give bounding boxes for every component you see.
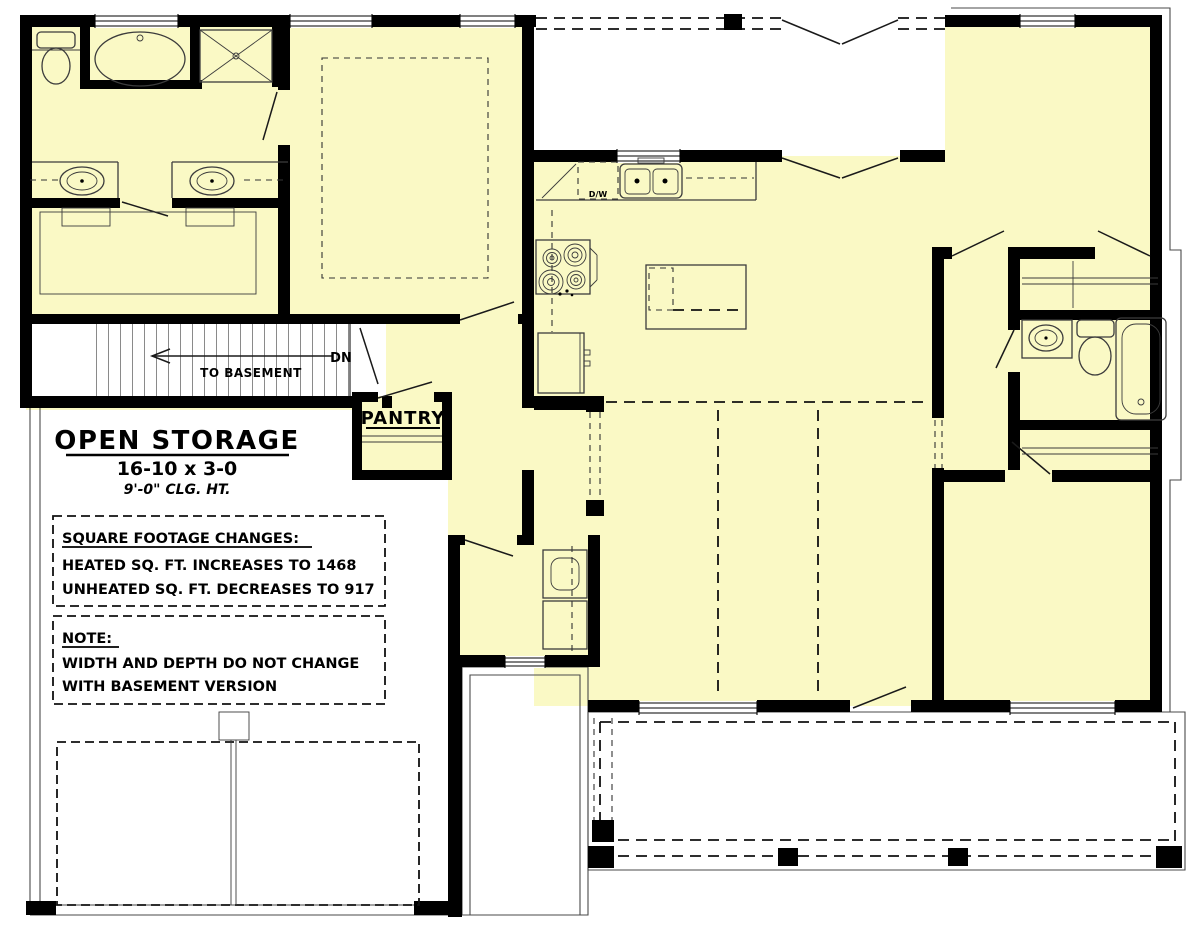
sqft-changes-box: SQUARE FOOTAGE CHANGES: HEATED SQ. FT. I… <box>53 516 385 606</box>
pantry-label: PANTRY <box>361 408 446 429</box>
stairs-destination-label: TO BASEMENT <box>200 366 302 380</box>
porch-post <box>588 846 614 868</box>
porch-post <box>778 848 798 866</box>
dishwasher-label: D/W <box>589 190 608 199</box>
porch-post <box>724 14 742 30</box>
sqft-title: SQUARE FOOTAGE CHANGES: <box>62 531 299 547</box>
window <box>617 149 680 163</box>
window <box>505 656 545 668</box>
open-storage: OPEN STORAGE 16-10 x 3-0 9'-0" CLG. HT. <box>54 426 300 498</box>
sqft-line2: UNHEATED SQ. FT. DECREASES TO 917 <box>62 582 375 598</box>
note-line1: WIDTH AND DEPTH DO NOT CHANGE <box>62 656 359 672</box>
window <box>1020 14 1075 28</box>
window <box>290 14 372 28</box>
window <box>1010 701 1115 715</box>
front-porch <box>588 718 1182 868</box>
window <box>639 701 757 715</box>
floor-plan-page: TO BASEMENT DN <box>0 0 1200 932</box>
garage-outline <box>57 712 419 905</box>
open-storage-dimensions: 16-10 x 3-0 <box>117 458 238 480</box>
note-box: NOTE: WIDTH AND DEPTH DO NOT CHANGE WITH… <box>53 616 385 704</box>
open-storage-title: OPEN STORAGE <box>54 426 300 456</box>
basement-stairs: TO BASEMENT DN <box>96 324 352 396</box>
open-storage-ceiling: 9'-0" CLG. HT. <box>124 482 231 498</box>
sqft-line1: HEATED SQ. FT. INCREASES TO 1468 <box>62 558 356 574</box>
rear-porch <box>536 14 945 44</box>
window <box>95 14 178 28</box>
note-title: NOTE: <box>62 631 112 647</box>
porch-post <box>592 820 614 842</box>
floor-plan-drawing: TO BASEMENT DN <box>0 0 1200 932</box>
porch-post <box>948 848 968 866</box>
stairs-dn-label: DN <box>330 351 352 366</box>
note-line2: WITH BASEMENT VERSION <box>62 679 277 695</box>
window <box>460 14 515 28</box>
porch-post <box>1156 846 1182 868</box>
